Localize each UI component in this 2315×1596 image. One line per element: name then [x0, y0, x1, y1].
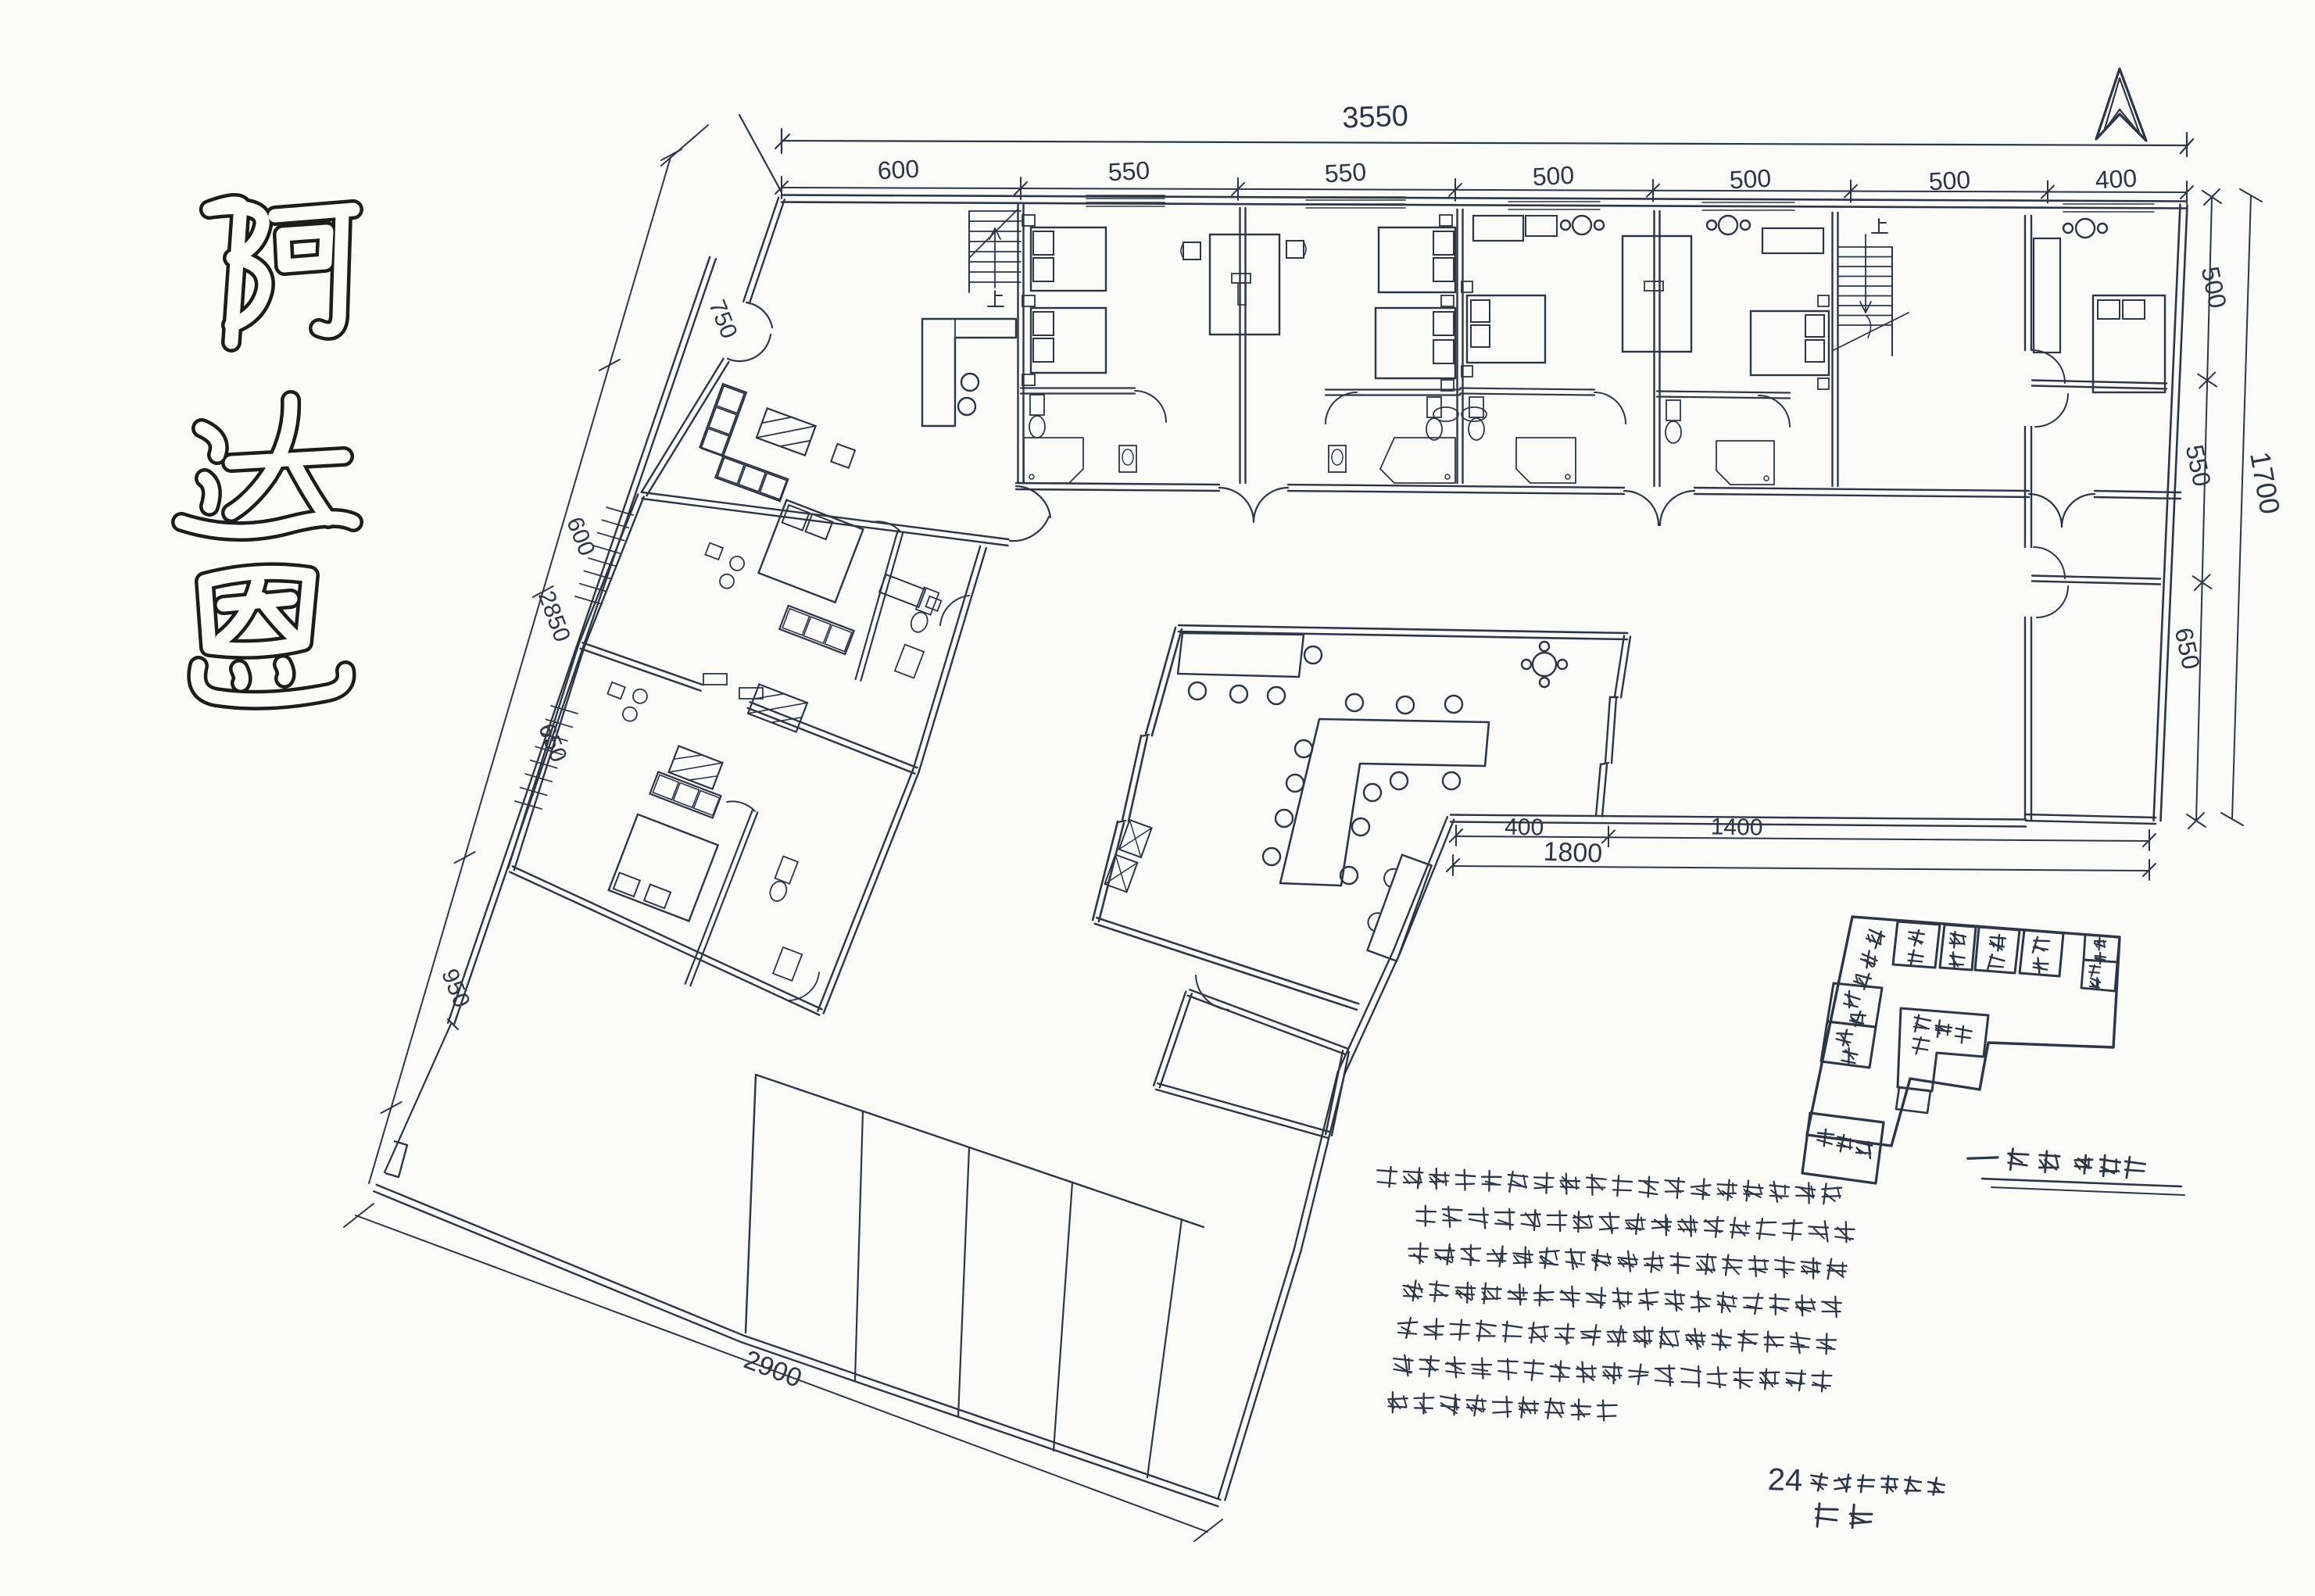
svg-text:500: 500: [1532, 161, 1575, 191]
svg-text:500: 500: [1729, 164, 1772, 195]
svg-text:550: 550: [1107, 156, 1150, 187]
svg-text:550: 550: [1324, 158, 1367, 188]
svg-text:3550: 3550: [1342, 100, 1409, 135]
svg-text:500: 500: [1928, 166, 1971, 196]
svg-text:600: 600: [877, 155, 920, 185]
svg-text:400: 400: [2095, 164, 2138, 195]
svg-text:24: 24: [1767, 1462, 1803, 1498]
svg-text:1800: 1800: [1543, 837, 1603, 869]
svg-text:400: 400: [1505, 814, 1544, 841]
